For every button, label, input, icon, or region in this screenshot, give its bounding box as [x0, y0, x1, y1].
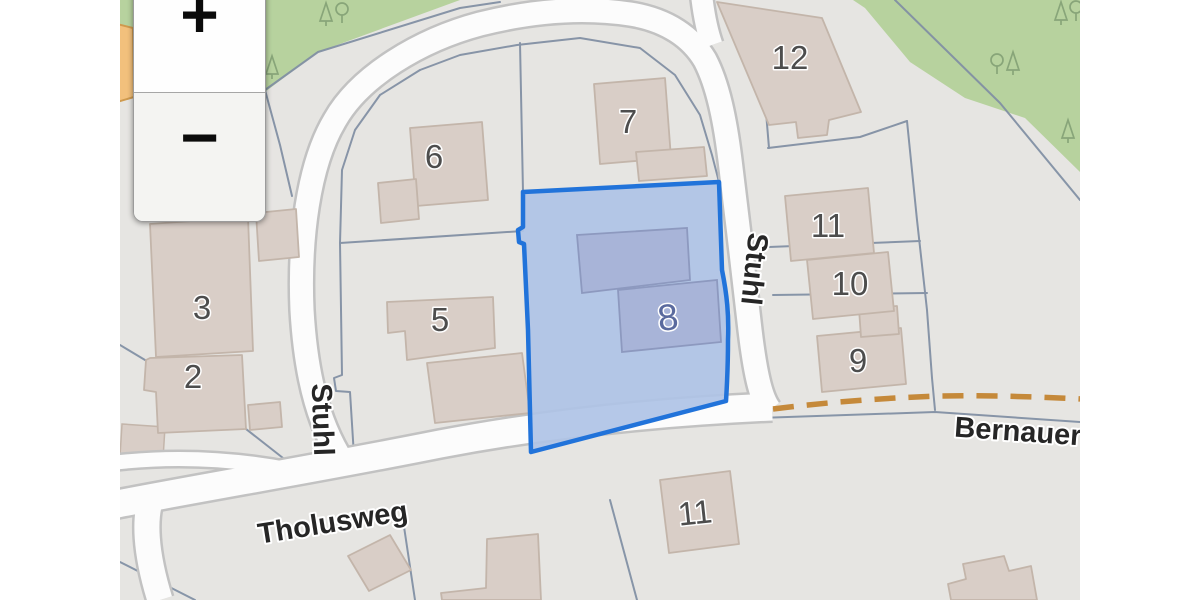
- house-number-2: 2: [184, 358, 202, 395]
- house-number-3: 3: [193, 289, 211, 326]
- house-number-11-south: 11: [676, 492, 714, 532]
- house-number-11-east: 11: [811, 207, 845, 244]
- house-number-9: 9: [849, 342, 867, 379]
- house-number-7: 7: [619, 103, 637, 140]
- zoom-in-button[interactable]: +: [134, 0, 265, 92]
- map-canvas[interactable]: 6 7 12 3 2 5 8 11 10 9 11 Stuhl Stuhl Th…: [120, 0, 1080, 600]
- building-6-annex: [378, 179, 419, 223]
- street-label-bernauer: Bernauer: [953, 412, 1080, 453]
- building-7-annex: [636, 147, 707, 181]
- building-6: [410, 122, 488, 206]
- house-number-5: 5: [431, 301, 449, 338]
- building-3: [150, 217, 253, 357]
- green-area-northeast: [820, 0, 1080, 172]
- building-5-south: [427, 353, 530, 423]
- letterbox-left: [0, 0, 120, 600]
- letterbox-right: [1080, 0, 1200, 600]
- building-staircase-southeast: [948, 556, 1037, 600]
- house-number-6: 6: [425, 138, 443, 175]
- road-stuhl-north-stub: [701, 0, 712, 45]
- house-number-10: 10: [832, 265, 869, 302]
- zoom-control: + −: [133, 0, 266, 222]
- street-label-stuhl-left: Stuhl: [305, 383, 340, 457]
- building-2-annex: [248, 402, 282, 430]
- building-l-shape-south: [441, 534, 541, 600]
- house-number-8: 8: [656, 296, 681, 339]
- house-number-12: 12: [772, 39, 809, 76]
- road-southwest-branch: [147, 491, 160, 600]
- orange-road-fragment: [120, 24, 134, 102]
- screen: 6 7 12 3 2 5 8 11 10 9 11 Stuhl Stuhl Th…: [0, 0, 1200, 600]
- zoom-out-button[interactable]: −: [134, 92, 265, 221]
- building-small-southwest: [348, 535, 411, 591]
- track-bernauer-dashed: [773, 396, 1080, 409]
